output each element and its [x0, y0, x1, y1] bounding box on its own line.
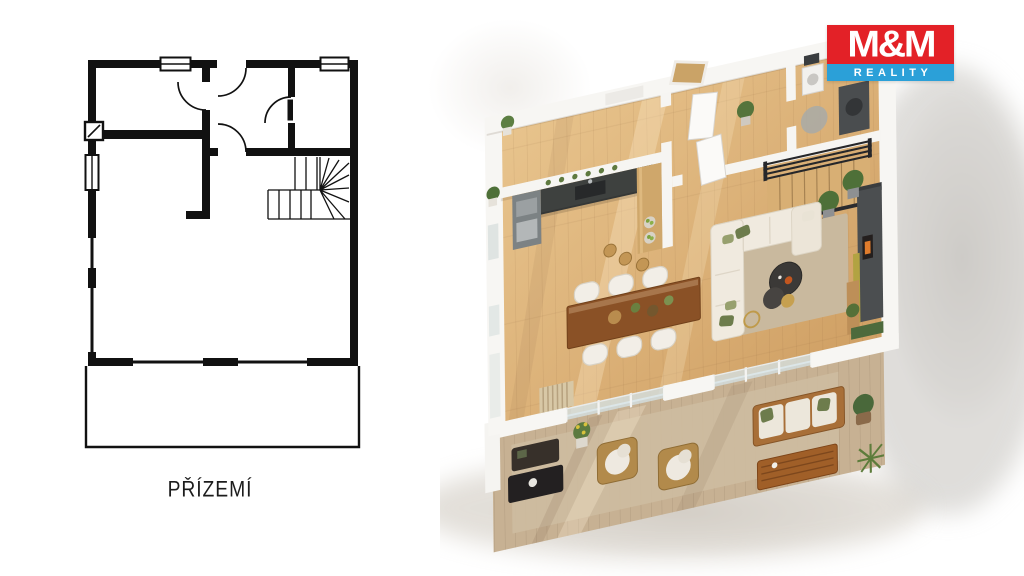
- floor-label: PŘÍZEMÍ: [118, 477, 302, 502]
- plan-door-arcs: [178, 68, 291, 152]
- listing-image: PŘÍZEMÍ: [0, 0, 1024, 576]
- plan-windows: [86, 58, 349, 191]
- plan-staircase: [268, 157, 350, 219]
- floor-plan-2d: [70, 45, 380, 465]
- logo-top-band: M&M: [827, 25, 954, 64]
- wicker-armchair: [658, 442, 698, 491]
- logo-mm-text: M&M: [847, 25, 934, 64]
- plan-terrace-outline: [86, 366, 359, 447]
- plan-chimney: [85, 122, 103, 140]
- logo-reality-text: REALITY: [849, 67, 933, 79]
- plan-walls: [88, 60, 358, 366]
- agency-logo: M&M REALITY: [827, 25, 954, 81]
- white-door: [688, 92, 717, 140]
- plan-window-midlines: [92, 64, 349, 190]
- white-door: [696, 134, 726, 185]
- render-3d: [440, 0, 1024, 576]
- skylight-hatch: [671, 62, 707, 85]
- wicker-armchair: [597, 436, 637, 485]
- logo-reality-band: REALITY: [827, 64, 954, 81]
